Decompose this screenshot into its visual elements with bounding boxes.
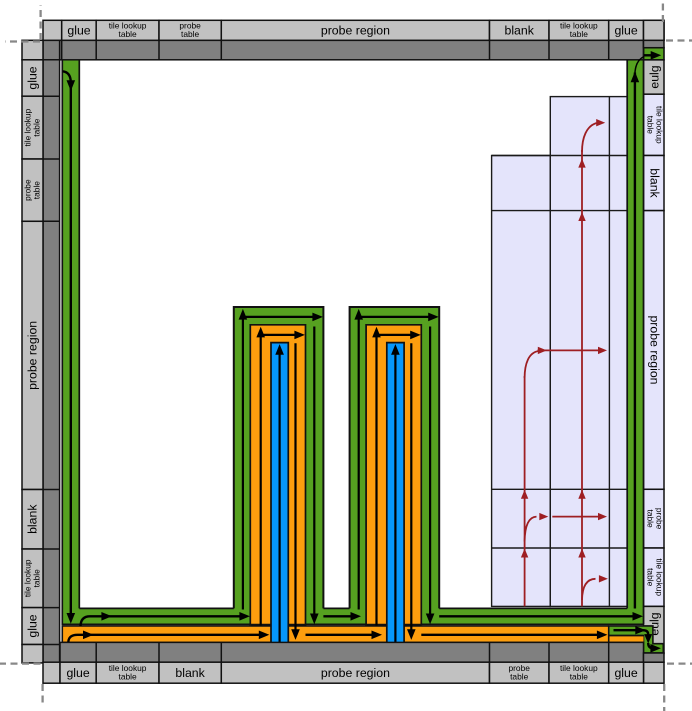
svg-text:probe region: probe region [648, 315, 662, 384]
svg-text:table: table [645, 116, 655, 135]
svg-text:table: table [181, 29, 200, 39]
svg-text:table: table [570, 29, 589, 39]
svg-text:table: table [645, 568, 655, 587]
svg-text:blank: blank [648, 168, 662, 198]
svg-text:blank: blank [504, 23, 534, 37]
svg-text:probe region: probe region [26, 321, 40, 390]
svg-text:table: table [32, 118, 42, 137]
svg-text:glue: glue [614, 666, 637, 680]
svg-text:probe region: probe region [321, 23, 390, 37]
svg-text:blank: blank [175, 666, 205, 680]
svg-text:table: table [570, 672, 589, 682]
svg-text:glue: glue [26, 614, 40, 637]
svg-text:probe region: probe region [321, 666, 390, 680]
svg-text:glue: glue [26, 66, 40, 89]
svg-text:glue: glue [66, 666, 89, 680]
svg-text:table: table [510, 672, 529, 682]
svg-text:table: table [119, 672, 138, 682]
svg-text:eulg: eulg [648, 65, 662, 88]
svg-text:table: table [119, 29, 138, 39]
svg-text:table: table [645, 510, 655, 529]
svg-text:table: table [32, 181, 42, 200]
svg-text:glue: glue [614, 23, 637, 37]
svg-text:glue: glue [67, 23, 90, 37]
svg-text:blank: blank [26, 504, 40, 534]
svg-text:table: table [32, 569, 42, 588]
